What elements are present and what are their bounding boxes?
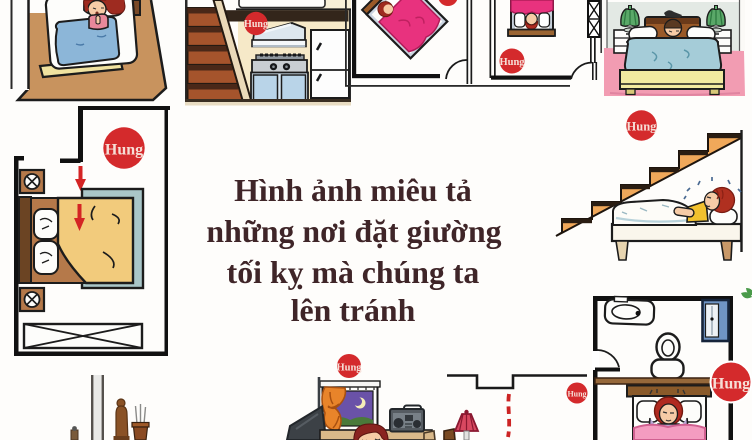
svg-text:những nơi đặt giường: những nơi đặt giường <box>206 214 501 249</box>
svg-text:Hung: Hung <box>244 19 268 30</box>
svg-text:Hung: Hung <box>105 142 143 159</box>
svg-text:Hung: Hung <box>712 376 750 393</box>
svg-text:lên tránh: lên tránh <box>291 293 416 328</box>
svg-text:Hung: Hung <box>627 120 658 134</box>
svg-text:Hung: Hung <box>336 363 362 374</box>
svg-text:Hung: Hung <box>499 57 525 68</box>
svg-text:tối kỵ mà chúng ta: tối kỵ mà chúng ta <box>227 255 480 290</box>
svg-text:Hình ảnh miêu tả: Hình ảnh miêu tả <box>234 173 472 208</box>
svg-text:Hung: Hung <box>567 390 586 399</box>
